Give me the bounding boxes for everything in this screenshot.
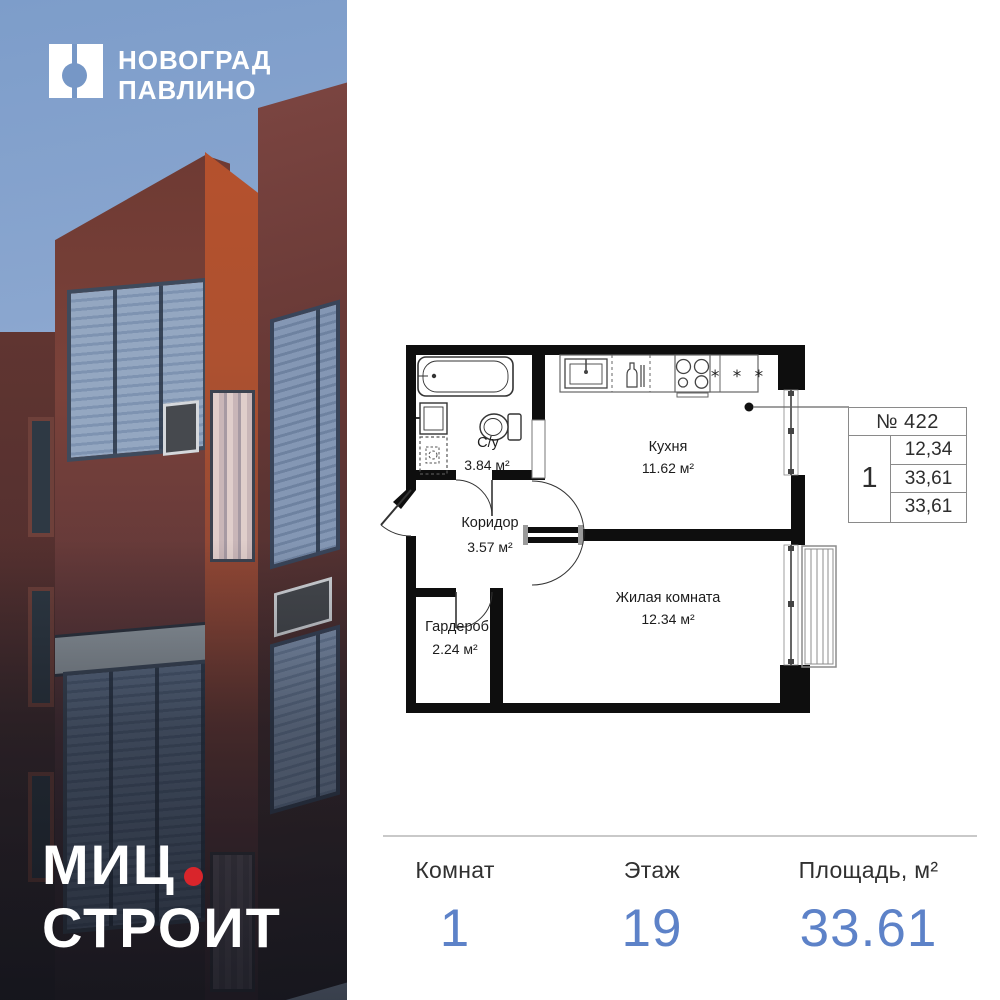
apartment-card[interactable]: НОВОГРАД ПАВЛИНО МИЦ СТРОИТ — [0, 0, 1000, 1000]
balcony — [802, 546, 836, 667]
floor-value: 19 — [582, 898, 722, 959]
apartment-info-table: № 422 1 12,34 33,61 33,61 — [848, 407, 967, 523]
room-area-corridor: 3.57 м² — [467, 539, 513, 555]
sink-icon — [416, 403, 447, 434]
glazed-balcony — [270, 299, 340, 569]
project-logo-text: НОВОГРАД ПАВЛИНО — [118, 45, 271, 105]
room-name-wardrobe: Гардероб — [425, 619, 489, 635]
summary-floor: Этаж 19 — [582, 857, 722, 959]
area-total-cell: 33,61 — [891, 465, 966, 494]
stove-icon — [675, 355, 710, 397]
window — [28, 417, 54, 537]
project-logo: НОВОГРАД ПАВЛИНО — [49, 44, 271, 105]
project-name-line2: ПАВЛИНО — [118, 75, 271, 105]
floor-label: Этаж — [582, 857, 722, 884]
area-label: Площадь, м² — [766, 857, 971, 884]
room-area-wardrobe: 2.24 м² — [432, 641, 478, 657]
room-name-corridor: Коридор — [461, 515, 518, 531]
developer-word1: МИЦ — [42, 833, 176, 896]
room-area-bathroom: 3.84 м² — [464, 457, 510, 473]
room-area-kitchen: 11.62 м² — [642, 460, 695, 476]
room-name-kitchen: Кухня — [649, 439, 688, 455]
summary-area: Площадь, м² 33.61 — [766, 857, 971, 959]
floor-plan: * * * С/у 3.84 м² Кухня 11.62 м² Коридор… — [370, 335, 980, 725]
room-area-living: 12.34 м² — [641, 611, 695, 627]
area-value: 33.61 — [766, 898, 971, 959]
novograd-pavlino-icon — [49, 44, 103, 98]
apartment-number: № 422 — [849, 408, 966, 436]
developer-word2: СТРОИТ — [42, 896, 282, 959]
bathtub-icon — [418, 357, 513, 396]
walls — [393, 345, 810, 713]
rooms-count-cell: 1 — [849, 436, 891, 522]
washing-machine-icon — [420, 437, 447, 474]
rooms-label: Комнат — [385, 857, 525, 884]
curtain-window — [210, 390, 255, 562]
fridge-symbol: * * * — [711, 367, 767, 387]
red-dot-icon — [184, 867, 203, 886]
developer-logo: МИЦ СТРОИТ — [42, 833, 282, 959]
summary-divider — [383, 835, 977, 837]
living-room-window — [784, 545, 798, 665]
window — [163, 400, 199, 456]
area-living-cell: 12,34 — [891, 436, 966, 465]
rooms-value: 1 — [385, 898, 525, 959]
area-total2-cell: 33,61 — [891, 493, 966, 522]
room-name-living: Жилая комната — [616, 590, 722, 606]
room-name-bathroom: С/у — [477, 435, 500, 451]
kitchen-window — [784, 390, 798, 475]
kitchen-sink-icon — [565, 359, 607, 388]
summary-rooms: Комнат 1 — [385, 857, 525, 959]
project-name-line1: НОВОГРАД — [118, 45, 271, 75]
duct-shaft — [532, 420, 545, 478]
